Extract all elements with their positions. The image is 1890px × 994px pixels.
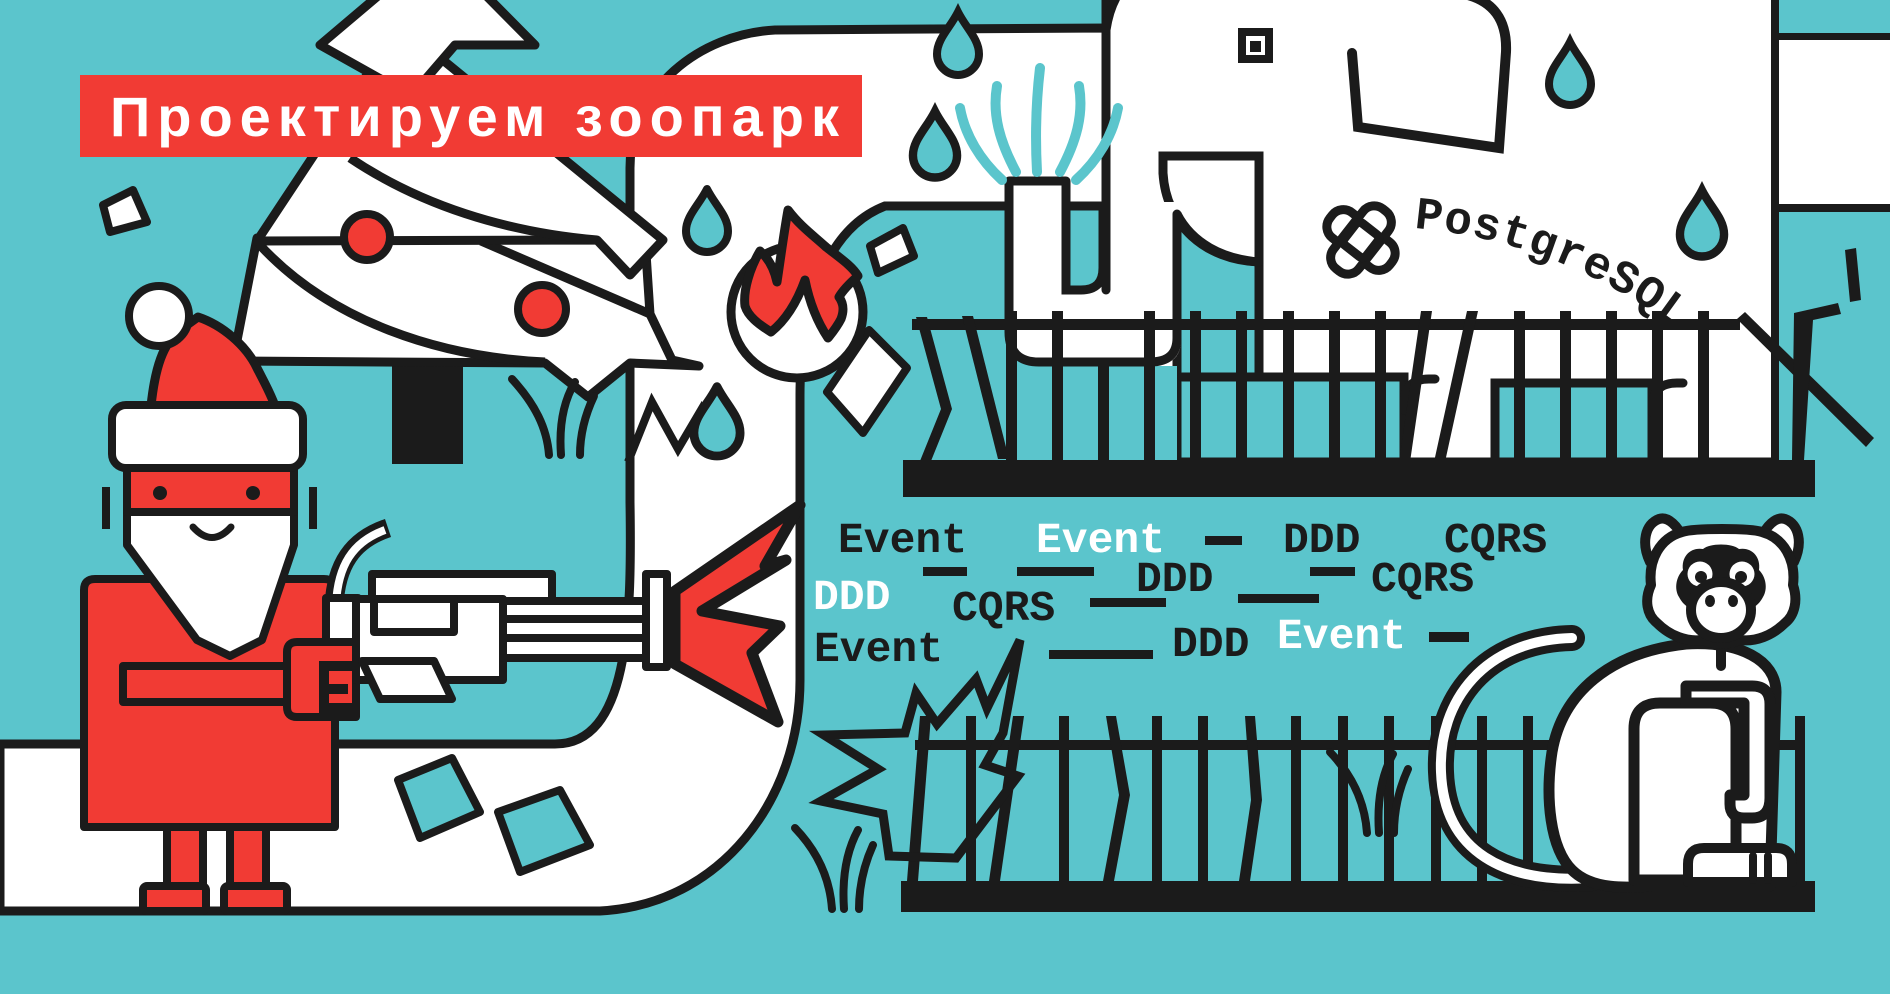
svg-text:DDD: DDD: [1172, 620, 1249, 669]
svg-text:Event: Event: [1277, 612, 1406, 661]
svg-text:Event: Event: [814, 625, 943, 674]
svg-text:DDD: DDD: [1136, 555, 1213, 604]
svg-text:DDD: DDD: [1283, 516, 1360, 565]
svg-text:CQRS: CQRS: [952, 584, 1055, 633]
svg-text:DDD: DDD: [813, 573, 890, 622]
svg-text:Event: Event: [838, 516, 967, 565]
svg-text:Проектируем зоопарк: Проектируем зоопарк: [110, 85, 846, 148]
svg-text:CQRS: CQRS: [1371, 555, 1474, 604]
